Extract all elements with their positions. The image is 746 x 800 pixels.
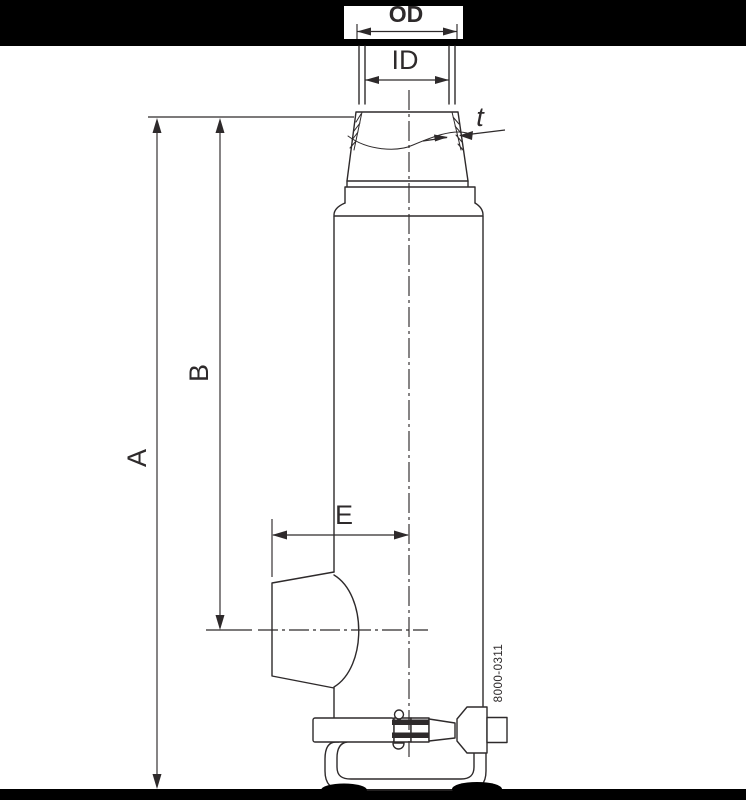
ground-shadow-right xyxy=(452,782,502,796)
drawing-number: 8000-0311 xyxy=(493,644,505,703)
page-background xyxy=(0,0,746,800)
rod-taper xyxy=(429,719,455,741)
ground-shadow-left xyxy=(321,784,367,797)
a-label: A xyxy=(122,449,152,467)
end-nut xyxy=(487,718,507,743)
dimension-drawing: OD ID t A B E 8000-0311 xyxy=(0,0,746,800)
id-label: ID xyxy=(392,45,419,75)
technical-drawing-page: OD ID t A B E 8000-0311 xyxy=(0,0,746,800)
b-label: B xyxy=(184,364,214,382)
wing-nut xyxy=(457,707,487,753)
trunnion-pin-top xyxy=(395,710,404,719)
threaded-rod-lower xyxy=(392,733,430,739)
threaded-rod-upper xyxy=(392,720,429,726)
e-label: E xyxy=(335,500,353,530)
trunnion-pin-bottom xyxy=(393,743,404,749)
clamp-bar xyxy=(313,718,394,742)
od-label: OD xyxy=(389,1,424,27)
